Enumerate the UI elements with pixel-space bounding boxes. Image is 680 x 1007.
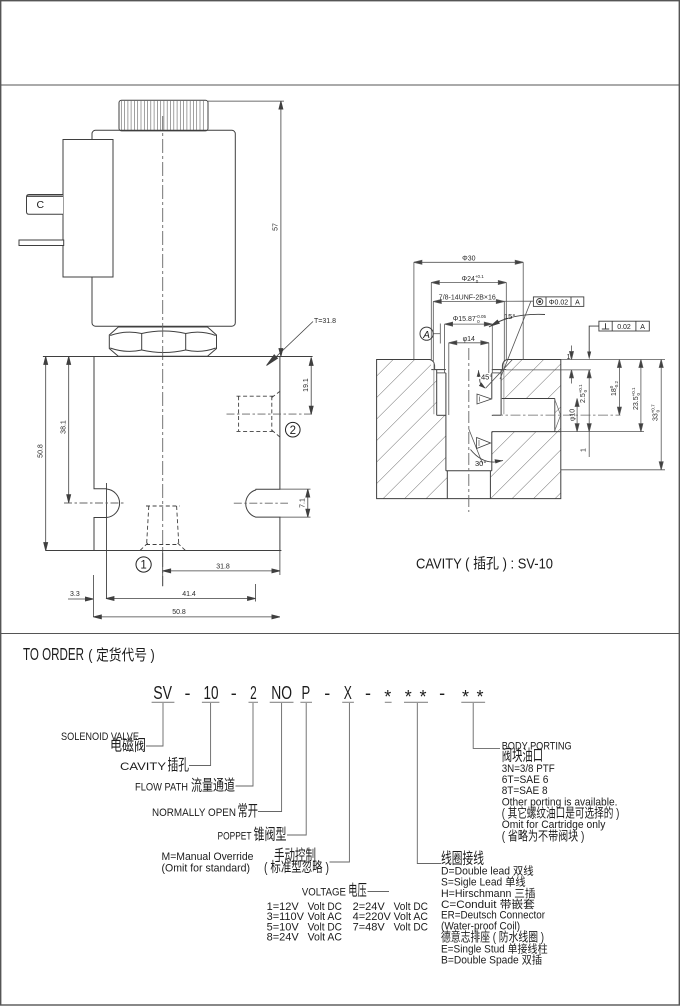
svg-text:50.8: 50.8 — [38, 444, 45, 458]
svg-text:CAVITY ( 插孔 ) : SV-10: CAVITY ( 插孔 ) : SV-10 — [416, 556, 553, 573]
svg-text:H=Hirschmann 三插: H=Hirschmann 三插 — [441, 886, 536, 900]
svg-text:30°: 30° — [475, 459, 486, 468]
svg-text:7.1: 7.1 — [299, 498, 306, 508]
svg-text:-: - — [185, 683, 191, 703]
svg-text:M=Manual Override: M=Manual Override — [162, 851, 254, 863]
svg-text:8=24V: 8=24V — [267, 932, 300, 944]
svg-text:VOLTAGE: VOLTAGE — [302, 887, 346, 899]
svg-text:电压: 电压 — [348, 882, 367, 900]
svg-text:C: C — [37, 199, 45, 211]
svg-text:锥阀型: 锥阀型 — [254, 826, 287, 844]
svg-text:*: * — [462, 687, 469, 707]
svg-text:Volt DC: Volt DC — [394, 921, 428, 933]
svg-text:*: * — [477, 687, 484, 707]
svg-text:*: * — [405, 687, 412, 707]
svg-text:8T=SAE 8: 8T=SAE 8 — [502, 785, 548, 797]
svg-text:A: A — [640, 324, 645, 331]
svg-text:41.4: 41.4 — [182, 591, 196, 598]
svg-text:-: - — [365, 683, 371, 703]
svg-text:(Omit for standard): (Omit for standard) — [162, 863, 251, 875]
svg-text:TO ORDER: TO ORDER — [23, 644, 84, 664]
svg-text:P: P — [302, 683, 311, 703]
svg-text:1: 1 — [581, 448, 588, 452]
svg-text:常开: 常开 — [238, 802, 259, 820]
svg-text:插孔: 插孔 — [168, 756, 190, 774]
svg-text:FLOW PATH: FLOW PATH — [135, 782, 188, 794]
svg-text:38.1: 38.1 — [61, 420, 68, 434]
svg-text:( 标准型忽略 ): ( 标准型忽略 ) — [264, 859, 329, 875]
svg-text:2: 2 — [250, 683, 257, 703]
svg-text:阀块油口: 阀块油口 — [502, 746, 544, 764]
svg-text:( 定货代号 ): ( 定货代号 ) — [88, 647, 154, 664]
svg-text:50.8: 50.8 — [172, 609, 186, 616]
svg-text:D=Double lead 双线: D=Double lead 双线 — [441, 864, 534, 878]
svg-text:流量通道: 流量通道 — [191, 777, 235, 795]
svg-text:3.3: 3.3 — [70, 591, 80, 598]
svg-text:( 省略为不带阀块 ): ( 省略为不带阀块 ) — [502, 829, 585, 844]
svg-text:Volt AC: Volt AC — [308, 932, 342, 944]
svg-text:Φ0.02: Φ0.02 — [549, 299, 568, 306]
svg-text:-: - — [324, 683, 330, 703]
svg-text:B=Double Spade 双插: B=Double Spade 双插 — [441, 953, 542, 967]
svg-text:德意志排座 ( 防水线圈 ): 德意志排座 ( 防水线圈 ) — [441, 930, 544, 945]
svg-text:φ10: φ10 — [570, 409, 577, 421]
svg-text:Φ30: Φ30 — [462, 255, 475, 262]
svg-text:*: * — [420, 687, 427, 707]
svg-text:-: - — [231, 683, 237, 703]
svg-text:A: A — [575, 299, 580, 306]
svg-text:SV: SV — [153, 683, 172, 703]
svg-text:31.8: 31.8 — [216, 563, 230, 570]
svg-text:X: X — [344, 683, 352, 703]
svg-text:CAVITY: CAVITY — [120, 761, 167, 773]
svg-text:S=Sigle Lead 单线: S=Sigle Lead 单线 — [441, 875, 526, 889]
svg-text:7/8-14UNF-2B×16: 7/8-14UNF-2B×16 — [439, 295, 496, 302]
svg-text:0.02: 0.02 — [617, 324, 631, 331]
svg-text:NO: NO — [271, 683, 292, 703]
svg-text:E=Single Stud 单接线柱: E=Single Stud 单接线柱 — [441, 942, 548, 956]
svg-text:57: 57 — [273, 223, 280, 231]
svg-text:电磁阀: 电磁阀 — [110, 737, 146, 755]
svg-text:T=31.8: T=31.8 — [314, 318, 336, 325]
svg-text:10: 10 — [204, 683, 219, 703]
svg-text:19.1: 19.1 — [303, 378, 310, 392]
svg-text:1: 1 — [567, 354, 571, 361]
svg-text:15°: 15° — [504, 312, 515, 321]
svg-text:1: 1 — [140, 560, 146, 572]
svg-text:φ14: φ14 — [463, 336, 475, 343]
svg-text:A: A — [422, 330, 430, 341]
svg-text:POPPET: POPPET — [218, 831, 252, 843]
svg-text:*: * — [384, 687, 391, 707]
svg-text:2: 2 — [290, 425, 296, 437]
svg-text:7=48V: 7=48V — [353, 921, 386, 933]
svg-text:-: - — [439, 683, 445, 703]
svg-text:NORMALLY OPEN: NORMALLY OPEN — [152, 807, 236, 819]
svg-text:45°: 45° — [481, 372, 492, 381]
